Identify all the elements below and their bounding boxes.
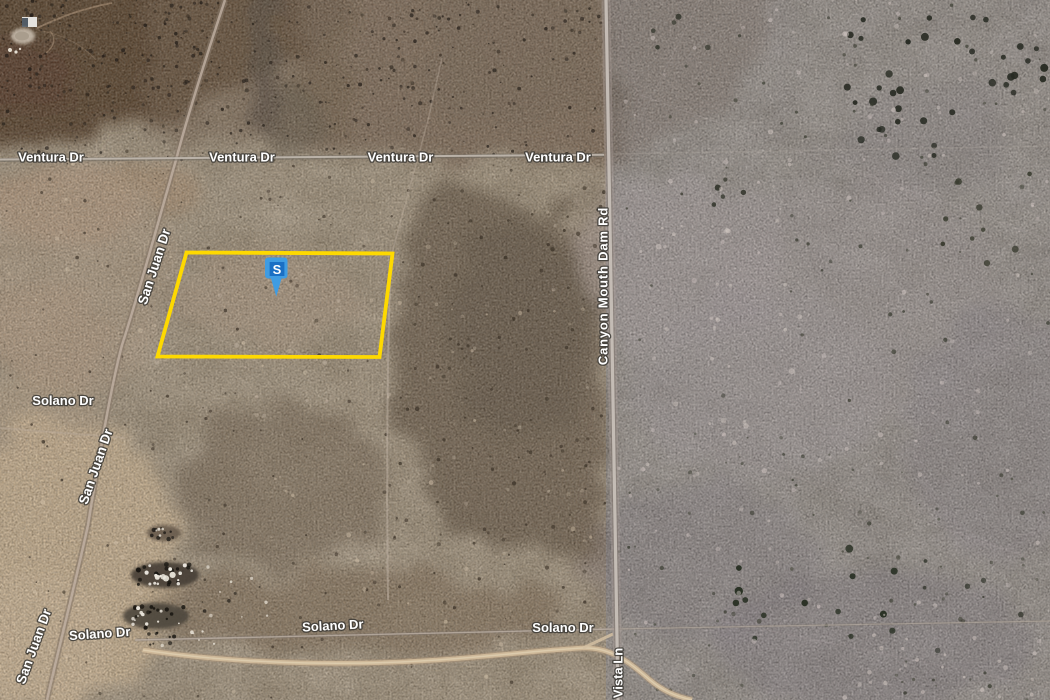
svg-text:Solano Dr: Solano Dr bbox=[302, 616, 364, 634]
svg-text:Vista Ln: Vista Ln bbox=[611, 648, 626, 698]
svg-text:Solano Dr: Solano Dr bbox=[532, 620, 593, 635]
svg-text:Canyon Mouth Dam Rd: Canyon Mouth Dam Rd bbox=[596, 207, 611, 365]
svg-text:Ventura Dr: Ventura Dr bbox=[18, 150, 84, 165]
svg-text:Ventura Dr: Ventura Dr bbox=[525, 150, 591, 165]
svg-text:S: S bbox=[273, 262, 282, 277]
svg-text:Solano Dr: Solano Dr bbox=[32, 393, 93, 408]
svg-text:Ventura Dr: Ventura Dr bbox=[209, 150, 275, 165]
svg-text:Ventura Dr: Ventura Dr bbox=[368, 150, 434, 165]
